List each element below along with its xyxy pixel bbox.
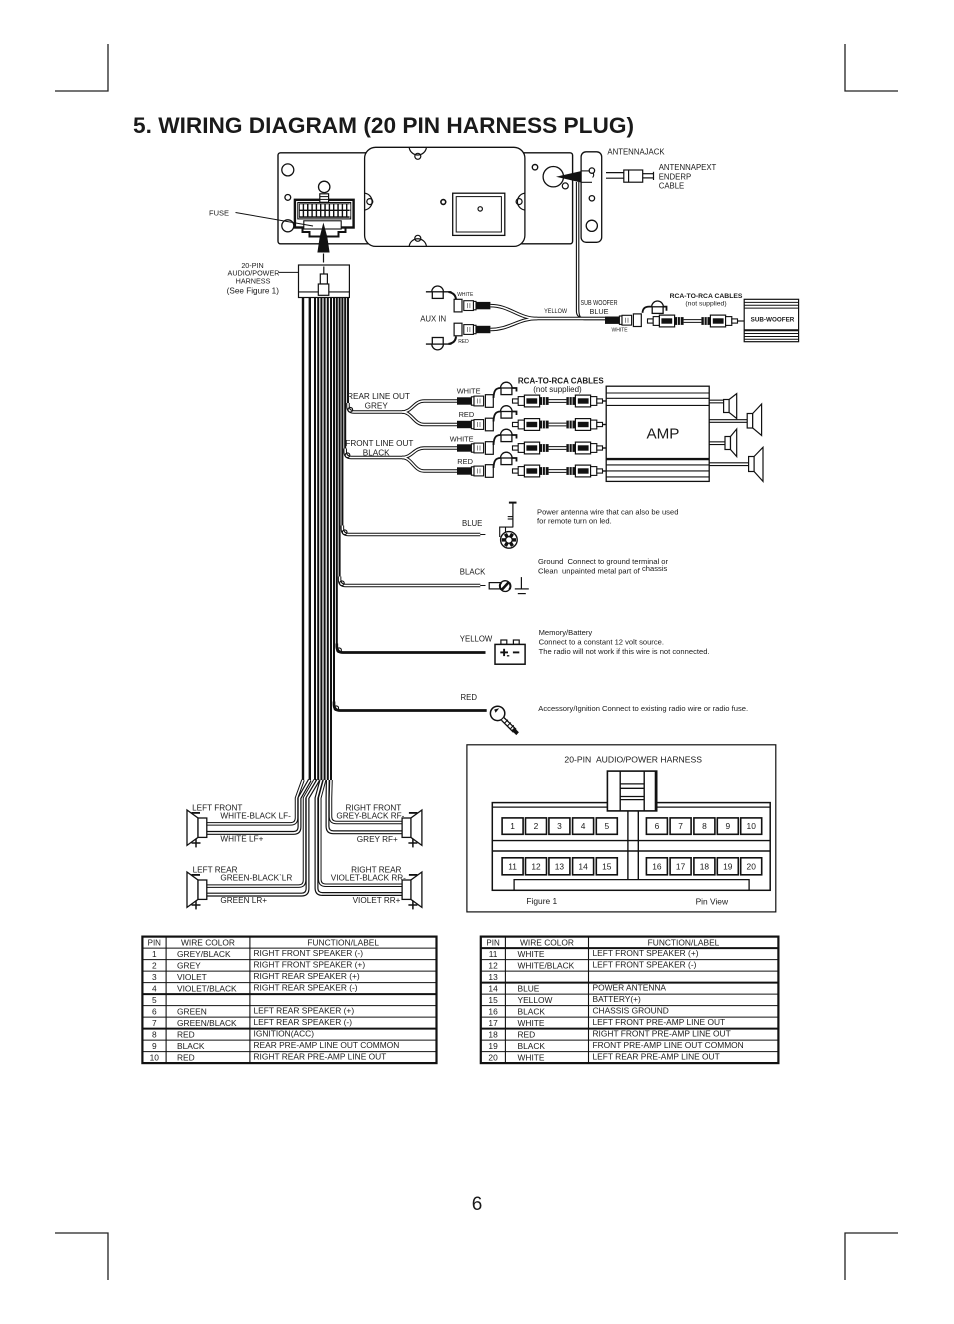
svg-text:RED: RED — [459, 410, 475, 419]
svg-text:5: 5 — [604, 821, 609, 831]
svg-text:WHITE: WHITE — [518, 949, 545, 959]
svg-text:16: 16 — [488, 1006, 498, 1016]
svg-text:13: 13 — [488, 972, 498, 982]
svg-text:FUNCTION/LABEL: FUNCTION/LABEL — [307, 937, 379, 947]
svg-text:RED: RED — [177, 1029, 195, 1039]
svg-text:12: 12 — [531, 862, 541, 872]
svg-text:8: 8 — [152, 1029, 157, 1039]
svg-text:5: 5 — [152, 995, 157, 1005]
svg-text:19: 19 — [723, 862, 733, 872]
svg-text:BLUE: BLUE — [518, 983, 540, 993]
svg-text:POWER ANTENNA: POWER ANTENNA — [593, 983, 667, 993]
svg-text:RIGHT FRONT SPEAKER (+): RIGHT FRONT SPEAKER (+) — [254, 960, 366, 970]
svg-text:Power antenna wire that can al: Power antenna wire that can also be used — [537, 507, 678, 516]
svg-text:REAR LINE OUT: REAR LINE OUT — [347, 392, 410, 401]
svg-text:REAR PRE-AMP LINE OUT COMMON: REAR PRE-AMP LINE OUT COMMON — [254, 1040, 400, 1050]
svg-text:16: 16 — [652, 862, 662, 872]
svg-text:RIGHT REAR PRE-AMP LINE OUT: RIGHT REAR PRE-AMP LINE OUT — [254, 1052, 387, 1062]
svg-text:RED: RED — [457, 457, 473, 466]
svg-text:RED: RED — [518, 1029, 536, 1039]
svg-text:GREEN/BLACK: GREEN/BLACK — [177, 1018, 237, 1028]
svg-text:Memory/Battery: Memory/Battery — [539, 628, 593, 637]
svg-text:20: 20 — [488, 1052, 498, 1062]
svg-text:WIRE COLOR: WIRE COLOR — [520, 937, 574, 947]
svg-text:9: 9 — [725, 821, 730, 831]
svg-text:6: 6 — [152, 1006, 157, 1016]
svg-text:GREEN-BLACK`LR: GREEN-BLACK`LR — [220, 874, 292, 883]
svg-text:LEFT REAR SPEAKER (+): LEFT REAR SPEAKER (+) — [254, 1006, 355, 1016]
svg-text:BLACK: BLACK — [460, 568, 486, 577]
svg-text:WHITE: WHITE — [518, 1018, 545, 1028]
svg-text:11: 11 — [508, 862, 517, 872]
svg-text:4: 4 — [152, 983, 157, 993]
svg-text:LEFT FRONT SPEAKER (-): LEFT FRONT SPEAKER (-) — [593, 960, 697, 970]
svg-text:CHASSIS GROUND: CHASSIS GROUND — [593, 1006, 669, 1016]
svg-text:WHITE: WHITE — [612, 328, 629, 334]
svg-text:VIOLET/BLACK: VIOLET/BLACK — [177, 983, 237, 993]
svg-text:20-PIN AUDIO/POWER HARNESS: 20-PIN AUDIO/POWER HARNESS — [564, 755, 702, 765]
svg-text:RIGHT FRONT SPEAKER (-): RIGHT FRONT SPEAKER (-) — [254, 948, 364, 958]
svg-text:AUX IN: AUX IN — [420, 314, 446, 323]
svg-text:Clean unpainted metal part of: Clean unpainted metal part of — [538, 566, 641, 575]
svg-text:1: 1 — [510, 821, 515, 831]
svg-text:RIGHT FRONT PRE-AMP LINE OUT: RIGHT FRONT PRE-AMP LINE OUT — [593, 1029, 731, 1039]
svg-text:14: 14 — [578, 862, 588, 872]
svg-text:Accessory/Ignition Connect to: Accessory/Ignition Connect to existing r… — [538, 704, 748, 713]
svg-text:GREY: GREY — [177, 960, 201, 970]
svg-text:RCA-TO-RCA CABLES: RCA-TO-RCA CABLES — [670, 293, 743, 300]
svg-text:RIGHT REAR SPEAKER (+): RIGHT REAR SPEAKER (+) — [254, 971, 360, 981]
svg-text:YELLOW: YELLOW — [460, 634, 493, 643]
svg-text:WHITE-BLACK LF-: WHITE-BLACK LF- — [220, 811, 291, 820]
svg-text:BLUE: BLUE — [462, 519, 482, 528]
svg-text:4: 4 — [581, 821, 586, 831]
svg-text:WHITE: WHITE — [457, 387, 481, 396]
svg-text:17: 17 — [488, 1018, 498, 1028]
svg-text:6: 6 — [472, 1194, 483, 1215]
svg-text:LEFT FRONT SPEAKER (+): LEFT FRONT SPEAKER (+) — [593, 948, 699, 958]
svg-text:7: 7 — [152, 1018, 157, 1028]
svg-text:WHITE: WHITE — [457, 292, 474, 298]
svg-text:12: 12 — [488, 960, 498, 970]
svg-text:18: 18 — [488, 1029, 498, 1039]
svg-text:YELLOW: YELLOW — [544, 308, 568, 315]
svg-text:15: 15 — [488, 995, 498, 1005]
svg-text:3: 3 — [152, 972, 157, 982]
svg-text:YELLOW: YELLOW — [518, 995, 553, 1005]
svg-text:GREEN LR+: GREEN LR+ — [220, 896, 267, 905]
svg-text:Pin View: Pin View — [696, 897, 729, 907]
svg-text:14: 14 — [488, 983, 498, 993]
svg-text:VIOLET-BLACK RR-: VIOLET-BLACK RR- — [331, 874, 406, 883]
svg-text:FRONT PRE-AMP LINE OUT COMMON: FRONT PRE-AMP LINE OUT COMMON — [593, 1040, 744, 1050]
svg-text:GREEN: GREEN — [177, 1006, 207, 1016]
svg-text:2: 2 — [152, 960, 157, 970]
svg-text:WHITE LF+: WHITE LF+ — [220, 835, 263, 844]
svg-text:BLACK: BLACK — [363, 448, 390, 457]
svg-text:17: 17 — [676, 862, 686, 872]
svg-text:BLACK: BLACK — [518, 1041, 546, 1051]
svg-text:13: 13 — [555, 862, 565, 872]
svg-text:RED: RED — [458, 339, 469, 345]
svg-text:WHITE/BLACK: WHITE/BLACK — [518, 960, 575, 970]
svg-text:5. WIRING DIAGRAM (20 PIN HARN: 5. WIRING DIAGRAM (20 PIN HARNESS PLUG) — [133, 113, 634, 138]
svg-text:ANTENNAPEXT: ANTENNAPEXT — [659, 163, 717, 172]
svg-text:(not supplied): (not supplied) — [685, 301, 726, 308]
svg-text:RED: RED — [461, 693, 478, 702]
svg-text:WHITE: WHITE — [450, 434, 474, 443]
svg-text:15: 15 — [602, 862, 612, 872]
svg-text:2: 2 — [534, 821, 539, 831]
svg-text:20: 20 — [747, 862, 757, 872]
svg-text:18: 18 — [700, 862, 710, 872]
svg-text:FUNCTION/LABEL: FUNCTION/LABEL — [648, 937, 720, 947]
svg-text:(not supplied): (not supplied) — [533, 385, 582, 394]
svg-text:SUB-WOOFER: SUB-WOOFER — [751, 316, 795, 323]
svg-text:BLUE: BLUE — [589, 307, 608, 316]
svg-text:HARNESS: HARNESS — [236, 276, 271, 285]
svg-text:IGNITION(ACC): IGNITION(ACC) — [254, 1029, 315, 1039]
svg-text:chassis: chassis — [642, 564, 668, 573]
svg-text:ENDERP: ENDERP — [659, 172, 692, 181]
svg-text:GREY-BLACK RF-: GREY-BLACK RF- — [336, 811, 404, 820]
svg-text:7: 7 — [678, 821, 683, 831]
svg-text:19: 19 — [488, 1041, 498, 1051]
svg-text:Figure 1: Figure 1 — [526, 896, 557, 906]
svg-text:GREY RF+: GREY RF+ — [357, 835, 398, 844]
svg-text:for remote turn on led.: for remote turn on led. — [537, 517, 612, 526]
svg-text:GREY/BLACK: GREY/BLACK — [177, 949, 231, 959]
svg-text:VIOLET: VIOLET — [177, 972, 207, 982]
svg-text:BLACK: BLACK — [177, 1041, 205, 1051]
svg-text:SUB WOOFER: SUB WOOFER — [581, 300, 618, 307]
svg-text:3: 3 — [557, 821, 562, 831]
svg-text:LEFT REAR SPEAKER (-): LEFT REAR SPEAKER (-) — [254, 1017, 353, 1027]
svg-text:WHITE: WHITE — [518, 1052, 545, 1062]
svg-text:WIRE COLOR: WIRE COLOR — [181, 937, 235, 947]
svg-text:1: 1 — [152, 949, 157, 959]
svg-text:The radio will not work if thi: The radio will not work if this wire is … — [539, 647, 710, 656]
svg-text:9: 9 — [152, 1041, 157, 1051]
svg-text:BLACK: BLACK — [518, 1006, 546, 1016]
svg-text:11: 11 — [489, 949, 498, 959]
svg-text:RIGHT REAR SPEAKER (-): RIGHT REAR SPEAKER (-) — [254, 983, 358, 993]
svg-text:(See Figure 1): (See Figure 1) — [227, 287, 280, 296]
svg-text:GREY: GREY — [365, 402, 389, 411]
svg-text:CABLE: CABLE — [659, 182, 685, 191]
svg-text:8: 8 — [702, 821, 707, 831]
svg-text:10: 10 — [150, 1052, 160, 1062]
svg-text:BATTERY(+): BATTERY(+) — [593, 994, 642, 1004]
svg-text:VIOLET RR+: VIOLET RR+ — [353, 896, 401, 905]
svg-text:AMP: AMP — [646, 426, 679, 443]
svg-text:RED: RED — [177, 1052, 195, 1062]
svg-text:FUSE: FUSE — [209, 209, 229, 218]
svg-text:LEFT REAR PRE-AMP LINE OUT: LEFT REAR PRE-AMP LINE OUT — [593, 1052, 720, 1062]
svg-text:LEFT FRONT PRE-AMP LINE OUT: LEFT FRONT PRE-AMP LINE OUT — [593, 1017, 726, 1027]
svg-text:10: 10 — [747, 821, 757, 831]
svg-text:FRONT LINE OUT: FRONT LINE OUT — [345, 439, 413, 448]
svg-text:PIN: PIN — [486, 938, 500, 947]
svg-text:ANTENNAJACK: ANTENNAJACK — [607, 148, 665, 157]
svg-text:Connect to a constant 12 volt: Connect to a constant 12 volt source. — [539, 637, 664, 646]
svg-text:PIN: PIN — [148, 938, 162, 947]
svg-text:6: 6 — [655, 821, 660, 831]
